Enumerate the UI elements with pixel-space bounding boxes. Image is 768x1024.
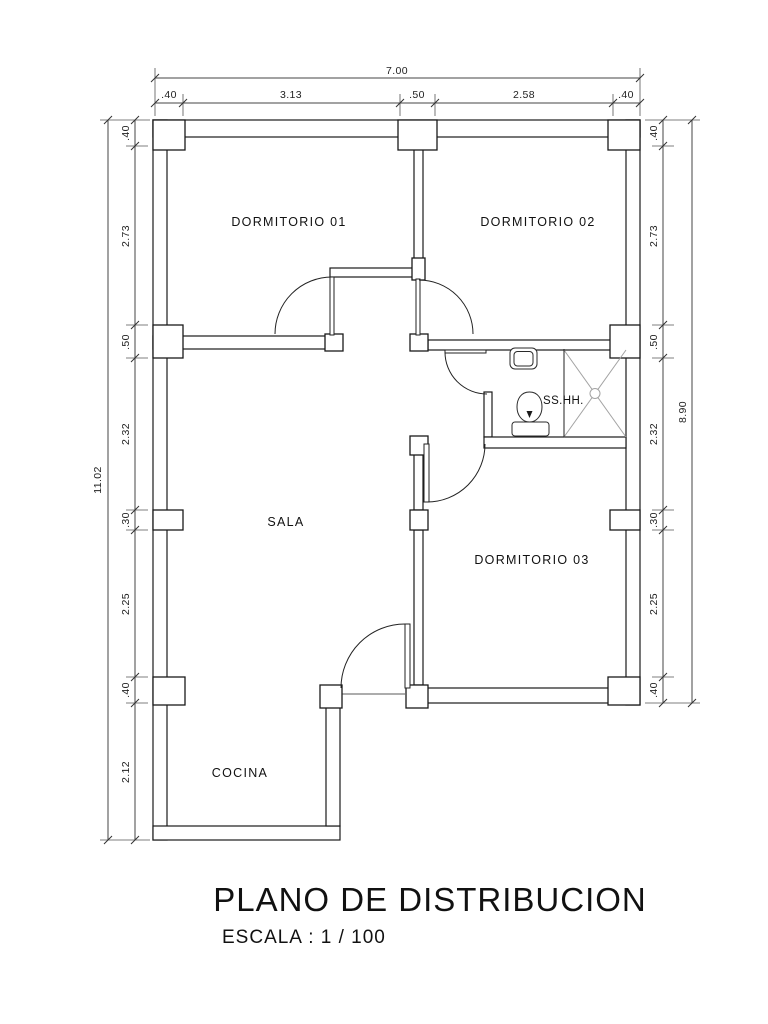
wall-west [153, 120, 167, 840]
page-title: PLANO DE DISTRIBUCION [213, 881, 647, 918]
door-swing-dormitorio-01 [275, 277, 332, 334]
wall-joint-patch [154, 827, 165, 838]
pilaster-center-lower [410, 510, 428, 530]
dim-left-seg-5: .30 [120, 512, 132, 528]
columns [153, 120, 640, 708]
dimension-left: 11.02 .40 2.73 .50 2.32 .30 2.25 .40 2.1… [92, 116, 150, 844]
dim-top-seg-3: .50 [409, 89, 425, 101]
wall-south-dormitorio-03 [426, 688, 628, 703]
dim-left-seg-7: .40 [120, 682, 132, 698]
room-label-bathroom: SS.HH. [543, 395, 584, 407]
room-label-sala: SALA [267, 515, 304, 529]
toilet-tank [512, 422, 549, 436]
wall-kitchen-south [153, 826, 340, 840]
floor-plan-page: DORMITORIO 01 DORMITORIO 02 SALA DORMITO… [0, 0, 768, 1024]
door-swing-bathroom [445, 352, 487, 394]
column-ne-corner [608, 120, 640, 150]
bathroom-fixtures [510, 348, 626, 437]
wall-sala-east-upper [414, 453, 423, 510]
dim-left-seg-4: 2.32 [120, 423, 132, 445]
dim-right-seg-2: 2.73 [648, 225, 660, 247]
dim-left-seg-3: .50 [120, 334, 132, 350]
door-swing-dormitorio-03 [427, 444, 485, 502]
dim-right-seg-5: .30 [648, 512, 660, 528]
door-leaf-dormitorio-02 [416, 279, 420, 335]
room-label-dormitorio-01: DORMITORIO 01 [231, 215, 346, 229]
column-vestibule-west-jamb [325, 334, 343, 351]
shower-drain-icon [590, 389, 600, 399]
wall-between-dorm01-dorm02 [414, 137, 423, 260]
dim-left-seg-1: .40 [120, 125, 132, 141]
door-swing-main-entry [341, 624, 405, 688]
column-sala-southwest [153, 677, 185, 705]
dim-right-seg-1: .40 [648, 125, 660, 141]
dim-top-seg-1: .40 [161, 89, 177, 101]
dim-top-seg-4: 2.58 [513, 89, 535, 101]
column-north-center [398, 120, 437, 150]
title-block: PLANO DE DISTRIBUCION ESCALA : 1 / 100 [213, 881, 647, 948]
wall-north [153, 120, 640, 137]
sink-basin [514, 352, 533, 367]
wall-kitchen-east [326, 695, 340, 826]
column-center-wall-end [412, 258, 425, 280]
scale-label: ESCALA : 1 / 100 [222, 927, 386, 948]
room-label-dormitorio-02: DORMITORIO 02 [480, 215, 595, 229]
pilaster-west-lower [153, 510, 183, 530]
pilaster-east-lower [610, 510, 640, 530]
column-vestibule-east-jamb [410, 334, 428, 351]
door-leaf-dormitorio-03 [424, 444, 429, 502]
pilaster-east-mid [610, 325, 640, 358]
column-entry-left-jamb [320, 685, 342, 708]
dim-right-seg-7: .40 [648, 682, 660, 698]
door-swing-dormitorio-02 [419, 280, 473, 334]
dimension-top: 7.00 .40 3.13 .50 2.58 .40 [151, 65, 644, 116]
dim-top-overall: 7.00 [386, 65, 408, 77]
dim-left-seg-2: 2.73 [120, 225, 132, 247]
door-leaf-bathroom [445, 350, 486, 353]
room-label-dormitorio-03: DORMITORIO 03 [474, 553, 589, 567]
dim-right-seg-4: 2.32 [648, 423, 660, 445]
wall-sala-east-lower [414, 530, 423, 685]
dim-left-seg-6: 2.25 [120, 593, 132, 615]
wall-bathroom-west [484, 392, 492, 437]
wall-bathroom-south [484, 437, 626, 448]
dim-left-seg-8: 2.12 [120, 761, 132, 783]
floor-plan-drawing: DORMITORIO 01 DORMITORIO 02 SALA DORMITO… [0, 0, 768, 1024]
dim-left-overall: 11.02 [92, 466, 104, 494]
column-se-corner [608, 677, 640, 705]
wall-vestibule-header [330, 268, 423, 277]
dim-right-seg-6: 2.25 [648, 593, 660, 615]
column-nw-corner [153, 120, 185, 150]
dim-top-seg-5: .40 [618, 89, 634, 101]
dim-right-seg-3: .50 [648, 334, 660, 350]
room-label-cocina: COCINA [212, 766, 268, 780]
dimension-right: .40 2.73 .50 2.32 .30 2.25 .40 8.90 [645, 116, 700, 707]
dim-right-overall: 8.90 [677, 401, 689, 423]
door-leaf-dormitorio-01 [330, 277, 334, 335]
door-leaf-main-entry [405, 624, 410, 688]
wall-east [626, 120, 640, 705]
dim-top-seg-2: 3.13 [280, 89, 302, 101]
pilaster-west-mid [153, 325, 183, 358]
